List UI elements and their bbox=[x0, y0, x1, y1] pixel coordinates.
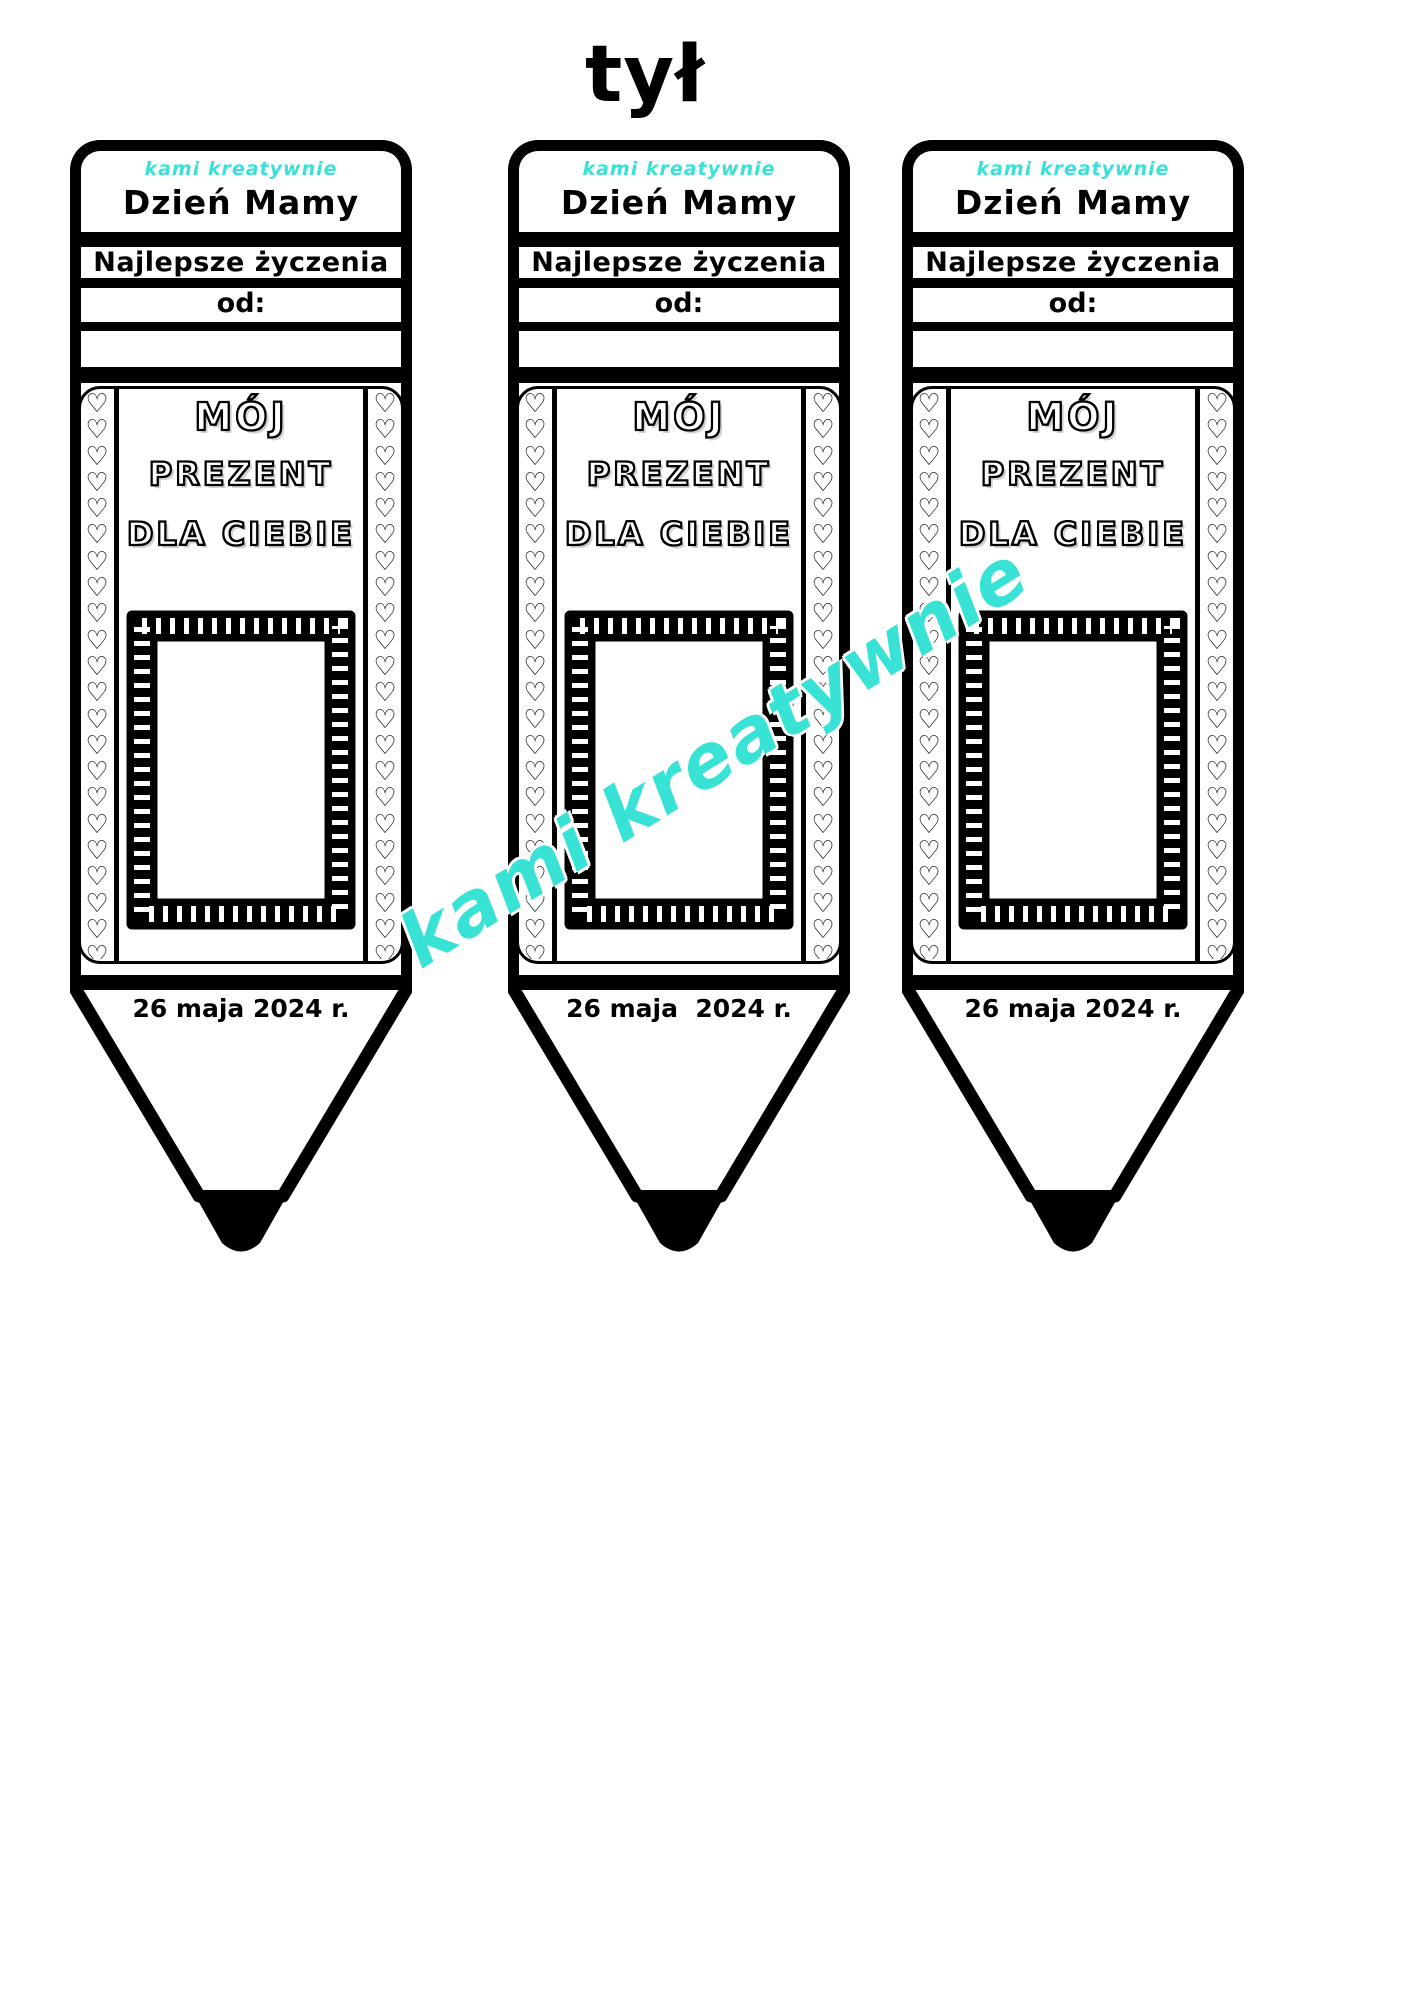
date-text: 26 maja 2024 r. bbox=[70, 994, 412, 1023]
pencil-lead-icon bbox=[630, 1190, 728, 1252]
divider-band bbox=[913, 322, 1233, 331]
from-label: od: bbox=[913, 288, 1233, 322]
photo-frame bbox=[126, 610, 356, 930]
divider-band bbox=[81, 232, 401, 247]
blank-name-line bbox=[519, 331, 839, 367]
heart-border-icon: ♡ ♡ ♡ ♡ ♡ ♡ ♡ ♡ ♡ ♡ ♡ ♡ ♡ ♡ ♡ ♡ ♡ ♡ ♡ ♡ … bbox=[82, 391, 112, 959]
heart-border-icon: ♡ ♡ ♡ ♡ ♡ ♡ ♡ ♡ ♡ ♡ ♡ ♡ ♡ ♡ ♡ ♡ ♡ ♡ ♡ ♡ … bbox=[370, 391, 400, 959]
divider-band bbox=[519, 322, 839, 331]
blank-name-line bbox=[913, 331, 1233, 367]
body-bottom-band bbox=[902, 975, 1244, 990]
pencil-tip bbox=[902, 990, 1244, 1275]
panel-divider-line bbox=[946, 389, 951, 961]
divider-band bbox=[519, 367, 839, 383]
divider-band bbox=[519, 232, 839, 247]
photo-frame bbox=[958, 610, 1188, 930]
divider-band bbox=[913, 278, 1233, 288]
printable-sheet: tył kami kreatywnie Dzień Mamy Najlepsze… bbox=[0, 0, 1414, 2000]
panel-divider-line bbox=[363, 389, 368, 961]
brand-script-text: kami kreatywnie bbox=[913, 158, 1233, 180]
pencil-card: kami kreatywnie Dzień Mamy Najlepsze życ… bbox=[70, 140, 412, 1275]
pencil-card: kami kreatywnie Dzień Mamy Najlepsze życ… bbox=[902, 140, 1244, 1275]
pencil-lead-icon bbox=[1024, 1190, 1122, 1252]
panel-divider-line bbox=[114, 389, 119, 961]
gift-caption-line1: MÓJ bbox=[564, 395, 794, 439]
blank-name-line bbox=[81, 331, 401, 367]
divider-band bbox=[81, 322, 401, 331]
gift-caption-line2: PREZENT bbox=[564, 455, 794, 493]
wishes-label: Najlepsze życzenia bbox=[81, 247, 401, 278]
gift-caption-line3: DLA CIEBIE bbox=[564, 515, 794, 553]
occasion-heading: Dzień Mamy bbox=[913, 183, 1233, 222]
date-text: 26 maja 2024 r. bbox=[508, 994, 850, 1023]
gift-caption-line1: MÓJ bbox=[126, 395, 356, 439]
heart-border-icon: ♡ ♡ ♡ ♡ ♡ ♡ ♡ ♡ ♡ ♡ ♡ ♡ ♡ ♡ ♡ ♡ ♡ ♡ ♡ ♡ … bbox=[1202, 391, 1232, 959]
page-title: tył bbox=[535, 30, 755, 120]
pencil-lead-icon bbox=[192, 1190, 290, 1252]
divider-band bbox=[913, 367, 1233, 383]
body-bottom-band bbox=[70, 975, 412, 990]
from-label: od: bbox=[519, 288, 839, 322]
date-text: 26 maja 2024 r. bbox=[902, 994, 1244, 1023]
occasion-heading: Dzień Mamy bbox=[519, 183, 839, 222]
pencil-tip bbox=[508, 990, 850, 1275]
divider-band bbox=[913, 232, 1233, 247]
from-label: od: bbox=[81, 288, 401, 322]
divider-band bbox=[81, 278, 401, 288]
header-block: kami kreatywnie Dzień Mamy bbox=[81, 151, 401, 232]
header-block: kami kreatywnie Dzień Mamy bbox=[519, 151, 839, 232]
gift-caption-line2: PREZENT bbox=[958, 455, 1188, 493]
brand-script-text: kami kreatywnie bbox=[519, 158, 839, 180]
gift-caption-line3: DLA CIEBIE bbox=[126, 515, 356, 553]
wishes-label: Najlepsze życzenia bbox=[519, 247, 839, 278]
wishes-label: Najlepsze życzenia bbox=[913, 247, 1233, 278]
body-bottom-band bbox=[508, 975, 850, 990]
divider-band bbox=[519, 278, 839, 288]
divider-band bbox=[81, 367, 401, 383]
occasion-heading: Dzień Mamy bbox=[81, 183, 401, 222]
header-block: kami kreatywnie Dzień Mamy bbox=[913, 151, 1233, 232]
pencil-tip bbox=[70, 990, 412, 1275]
panel-divider-line bbox=[1195, 389, 1200, 961]
brand-script-text: kami kreatywnie bbox=[81, 158, 401, 180]
gift-caption-line1: MÓJ bbox=[958, 395, 1188, 439]
gift-caption-line2: PREZENT bbox=[126, 455, 356, 493]
